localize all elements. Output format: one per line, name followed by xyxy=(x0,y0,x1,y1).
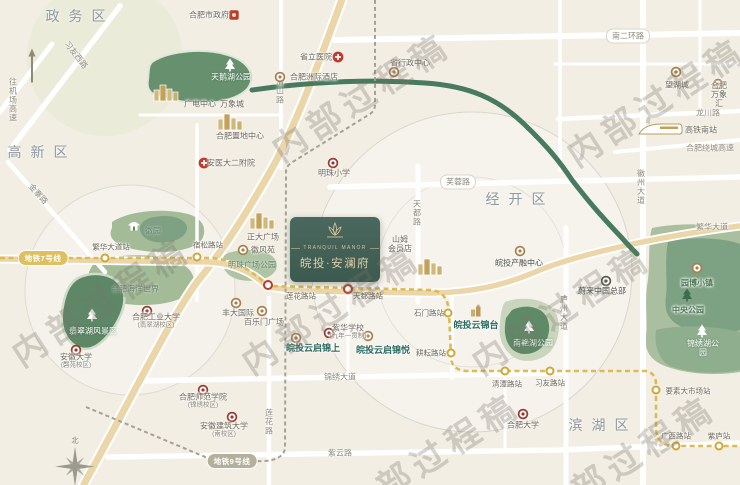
district-label-binhu: 滨湖区 xyxy=(569,415,638,435)
landmark-label-feicui-lake-scenic: 翡翠湖风景区 xyxy=(69,326,117,335)
hefei-government-icon xyxy=(229,10,240,21)
landmark-label-wantou-yunqi-jinshang: 皖投云启锦上 xyxy=(286,343,340,353)
district-label-jingkai: 经开区 xyxy=(486,189,555,209)
landmark-label-mixc-mall: 合肥万象汇 xyxy=(709,81,730,109)
property-name-en: TRANQUIL MANOR xyxy=(290,245,380,251)
zhidi-center-icon xyxy=(217,111,243,131)
metro-station-label: 繁华大道站 xyxy=(92,242,130,253)
property-card: TRANQUIL MANOR 皖投·安澜府 xyxy=(290,217,380,282)
metro-station-繁华大道站 xyxy=(101,254,110,263)
wantou-finance-center-icon xyxy=(515,246,526,257)
landmark-label-radio-tv-center: 广电中心 xyxy=(184,99,216,108)
metro-station-清潭路站 xyxy=(501,367,510,376)
landmark-label-hefei-government: 合肥市政府 xyxy=(189,10,229,19)
intercontinental-hotel-icon xyxy=(275,72,286,83)
landmark-label-fengda-intl: 丰大国际 xyxy=(222,308,254,317)
road-label-furong-rd: 芙蓉路 xyxy=(440,175,476,190)
metro-station-label: 宿松路站 xyxy=(193,240,223,251)
landmark-label-mingzhu-plaza-park: 明珠广场公园 xyxy=(228,260,276,269)
landmark-label-anhui-jianzhu-univ: 安徽建筑大学(南校区) xyxy=(200,422,248,439)
yuanbo-town-icon xyxy=(692,263,703,274)
hefei-university-icon xyxy=(518,409,529,420)
landmark-label-wantou-yunjintai: 皖投云锦台 xyxy=(453,320,498,330)
airport-direction-arrow xyxy=(28,49,36,88)
landmark-label-mingzhu-primary-school: 明珠小学 xyxy=(318,168,350,177)
metro-station-label: 莲花路站 xyxy=(286,291,316,302)
landmark-label-south-railway-station: 高铁南站 xyxy=(685,125,717,134)
landmark-label-nio-china-hq: 蔚来中国总部 xyxy=(578,286,626,295)
road-label-huizhou-ave: 徽州大道 xyxy=(636,169,647,205)
district-label-gaoxin: 高新区 xyxy=(8,142,77,162)
road-label-luzhou-ave: 庐州大道 xyxy=(559,295,570,331)
metro-station-label: 紫庐站 xyxy=(708,431,731,442)
wanghu-city-icon xyxy=(671,67,682,78)
road-label-south-2nd-ring-rd: 南二环路 xyxy=(606,29,650,44)
landmark-label-wantou-finance-center: 皖投产融中心 xyxy=(495,258,543,267)
landmark-label-prov-admin-center: 省行政中心 xyxy=(390,58,430,67)
wantou-yunjintai-icon xyxy=(470,305,483,318)
swan-lake-park-icon xyxy=(225,59,236,72)
landmark-sub-anhui-jianzhu-univ: (南校区) xyxy=(200,431,248,438)
landmark-label-central-park: 中央公园 xyxy=(672,305,704,314)
road-label-raocheng-expwy: 合肥绕城高速 xyxy=(686,143,734,154)
metro-station-label: 习友路站 xyxy=(535,378,565,389)
landmark-label-anyi-2nd-hospital: 安医大二附院 xyxy=(207,158,255,167)
huiyuan-park-icon xyxy=(127,221,141,231)
road-label-fanhua-ave: 繁华大道 xyxy=(696,222,728,233)
metro-station-莲花路站 xyxy=(263,280,273,290)
road-label-tiandu-rd: 天都路 xyxy=(412,200,423,227)
compass-north-label: 北 xyxy=(53,438,97,445)
provincial-hospital-icon xyxy=(332,51,344,63)
metro-station-label: 石门路站 xyxy=(414,308,444,319)
landmark-label-zihua-school: 紫华学校(九年一贯制) xyxy=(330,324,367,341)
metro-station-label: 清潭路站 xyxy=(492,379,522,390)
landmark-label-yuanbo-town: 园博小镇 xyxy=(681,278,713,287)
prov-admin-center-icon xyxy=(389,67,400,78)
jinxiu-lake-park-icon xyxy=(697,325,708,338)
metro-station-宿松路站 xyxy=(193,253,202,262)
feicui-lake-scenic-icon xyxy=(87,309,98,322)
road-label-jinxiu-ave: 锦绣大道 xyxy=(324,372,356,383)
road-label-lianhua-rd: 莲花路 xyxy=(264,409,275,436)
metro-badge-line7: 地铁7号线 xyxy=(18,250,69,266)
district-label-zhengwu: 政务区 xyxy=(46,6,115,26)
landmark-sub-anhui-university: (磬苑校区) xyxy=(60,362,92,369)
metro-station-耕耘路站 xyxy=(447,349,456,358)
metro-station-label: 耕耘路站 xyxy=(416,348,446,359)
metro-station-要素大市场站 xyxy=(652,386,661,395)
landmark-sub-zihua-school: (九年一贯制) xyxy=(330,333,367,340)
metro-station-天都路站 xyxy=(343,284,353,294)
zhengda-plaza-icon xyxy=(249,210,275,230)
landmark-label-provincial-hospital: 省立医院 xyxy=(300,52,332,61)
landmark-label-wanghu-city: 望湖城 xyxy=(665,80,689,89)
landmark-label-hefei-normal-univ: 合肥师范学院(锦绣校区) xyxy=(179,393,227,410)
landmark-label-huiyuan-park: 徽园 xyxy=(145,226,161,235)
road-label-longchuan-rd: 龙川路 xyxy=(696,108,720,119)
metro-station-label: 广西路站 xyxy=(661,431,691,442)
landmark-label-wanxiang-city: 万象城 xyxy=(220,99,244,108)
landmark-label-swan-lake-park: 天鹅湖公园 xyxy=(211,72,251,81)
huifengyuan-icon xyxy=(238,245,249,256)
compass-rose: 北 xyxy=(53,438,97,485)
mingzhu-primary-school-icon xyxy=(328,158,339,169)
landmark-sub-hfut: (翡翠湖校区) xyxy=(132,322,180,329)
buildings-illustration-icon xyxy=(417,256,443,276)
landmark-label-huifengyuan: 徽风苑 xyxy=(251,245,275,254)
landmark-label-hfut: 合肥工业大学(翡翠湖校区) xyxy=(132,313,180,330)
buildings-illustration-icon xyxy=(153,82,179,102)
bailemen-plaza-icon xyxy=(257,306,268,317)
landmark-sub-hefei-normal-univ: (锦绣校区) xyxy=(179,402,227,409)
landmark-label-intercontinental-hotel: 合肥洲际酒店 xyxy=(290,72,338,81)
landmark-label-nanyan-lake-park: 南艳湖公园 xyxy=(513,338,553,347)
metro-badge-line9: 地铁9号线 xyxy=(207,453,258,469)
landmark-label-bailemen-plaza: 百乐门广场 xyxy=(244,317,284,326)
central-park-icon xyxy=(682,289,693,302)
metro-station-紫庐站 xyxy=(715,442,724,451)
nio-china-hq-icon xyxy=(601,276,612,287)
landmark-label-wantou-yunqi-jinyue: 皖投云启锦悦 xyxy=(356,345,410,355)
road-label-to-airport-expwy: 往机场高速 xyxy=(8,78,19,123)
fengda-intl-icon xyxy=(231,298,242,309)
road-label-ziyun-rd: 紫云路 xyxy=(328,448,352,459)
metro-station-习友路站 xyxy=(546,367,555,376)
metro-station-label: 要素大市场站 xyxy=(666,386,711,397)
landmark-label-sams-club: 山姆 会员店 xyxy=(388,235,412,253)
nanyan-lake-park-icon xyxy=(524,321,535,334)
landmark-label-jinxiu-lake-park: 锦绣湖公园 xyxy=(685,339,722,357)
property-name-cn: 皖投·安澜府 xyxy=(290,255,380,271)
landmark-label-zhengda-plaza: 正大广场 xyxy=(247,232,279,241)
south-railway-station-icon xyxy=(637,121,683,137)
landmark-label-anhui-university: 安徽大学(磬苑校区) xyxy=(60,353,92,370)
property-logo-icon xyxy=(323,222,347,239)
landmark-label-hefei-university: 合肥大学 xyxy=(507,420,539,429)
landmark-label-zhidi-center: 合肥置地中心 xyxy=(216,131,264,140)
location-map: TRANQUIL MANOR 皖投·安澜府 内部过程稿内部过程稿内部过程稿内部过… xyxy=(0,0,740,485)
metro-station-石门路站 xyxy=(444,309,453,318)
metro-station-广西路站 xyxy=(672,442,681,451)
landmark-label-hefei-ocean-world: 合肥海洋世界 xyxy=(111,284,159,293)
metro-station-label: 天都路站 xyxy=(353,291,383,302)
